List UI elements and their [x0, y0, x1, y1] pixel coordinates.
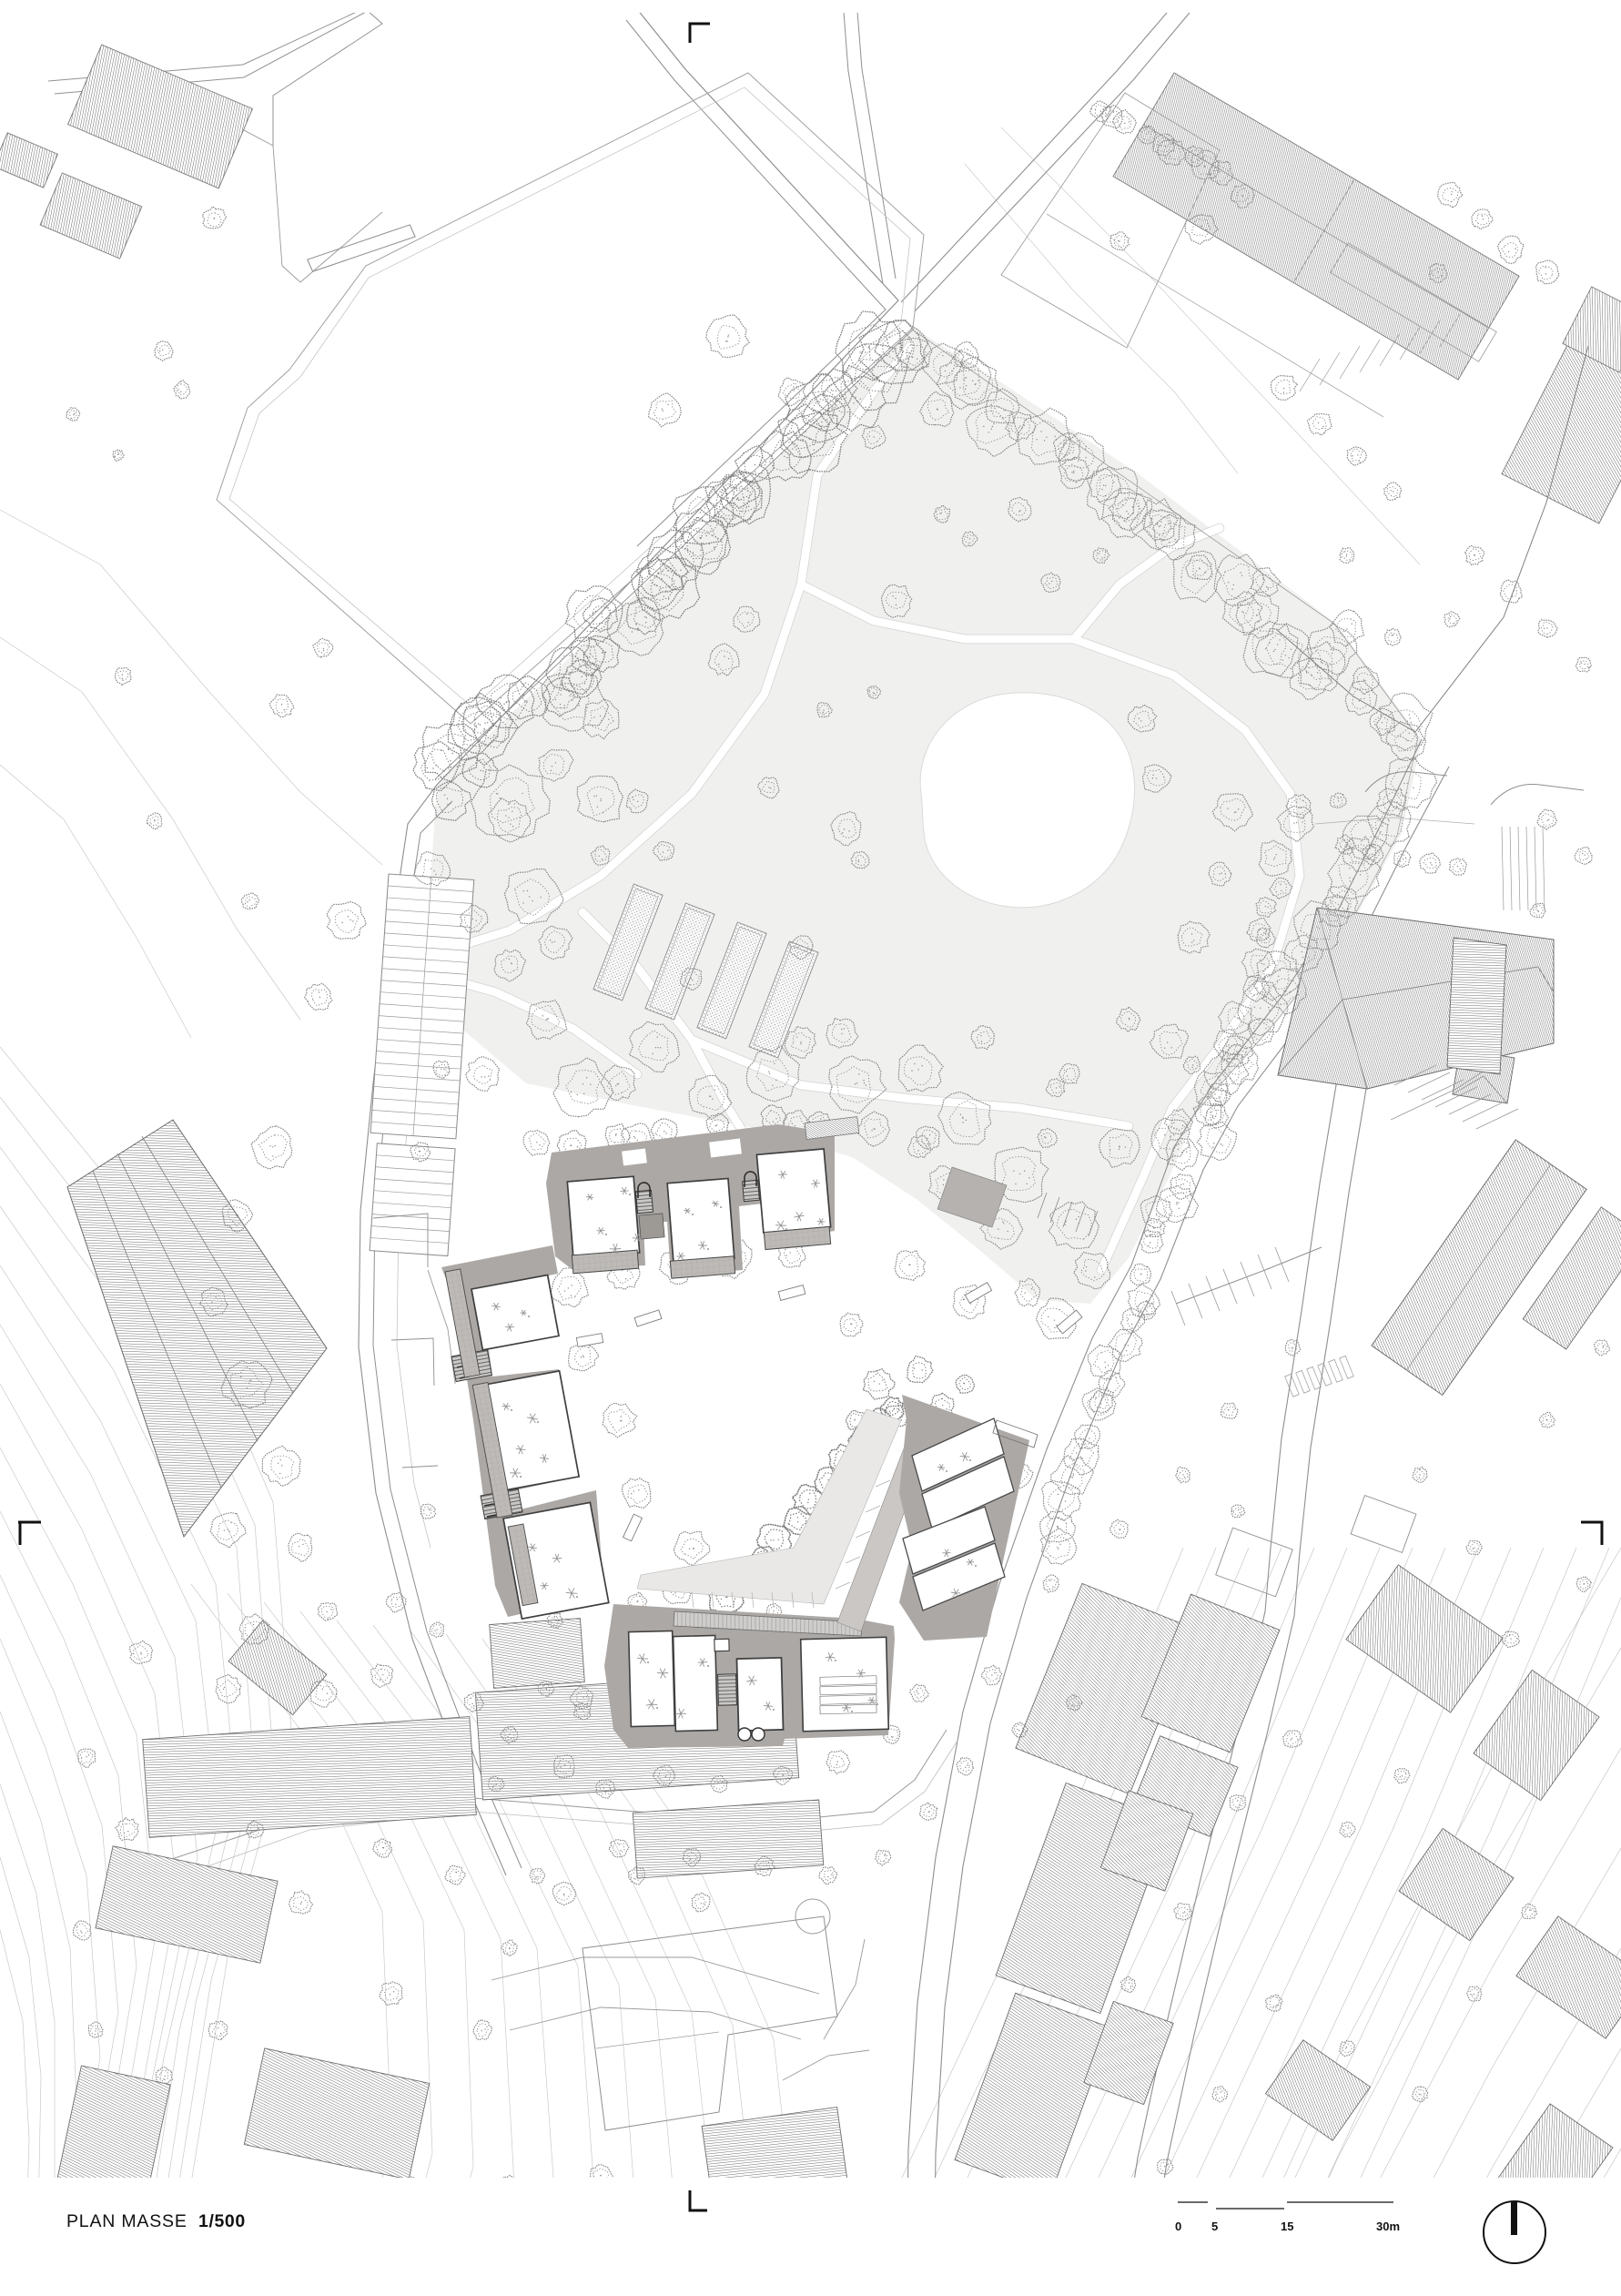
svg-text:30m: 30m	[1376, 2220, 1400, 2233]
svg-text:5: 5	[1211, 2220, 1218, 2233]
svg-text:1/500: 1/500	[198, 2211, 246, 2231]
svg-text:15: 15	[1281, 2220, 1293, 2233]
svg-text:PLAN MASSE: PLAN MASSE	[66, 2211, 187, 2231]
svg-text:0: 0	[1175, 2220, 1181, 2233]
